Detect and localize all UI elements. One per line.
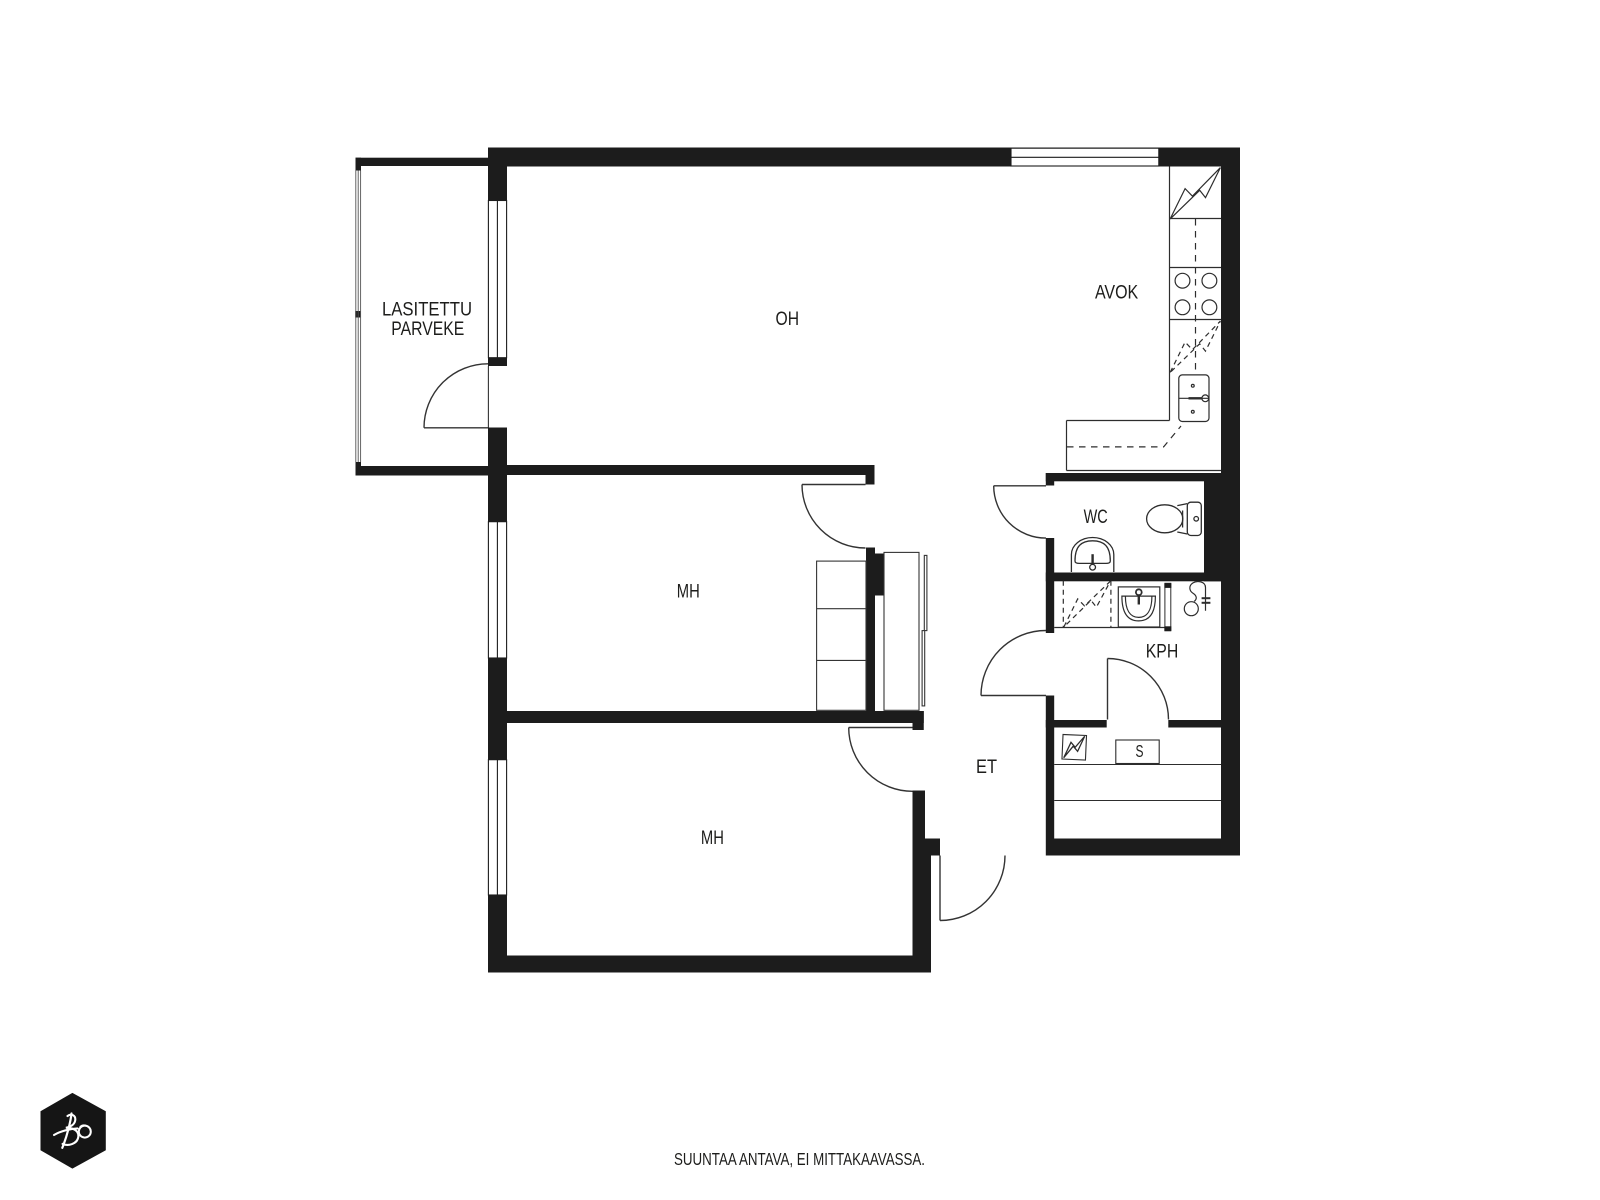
svg-text:MH: MH	[677, 582, 700, 603]
svg-text:WC: WC	[1084, 507, 1108, 528]
svg-text:S: S	[1136, 741, 1144, 761]
svg-text:ET: ET	[976, 757, 997, 778]
svg-text:PARVEKE: PARVEKE	[391, 319, 464, 340]
svg-text:KPH: KPH	[1146, 642, 1179, 663]
svg-text:LASITETTU: LASITETTU	[382, 300, 472, 321]
svg-text:SUUNTAA ANTAVA, EI MITTAKAAVAS: SUUNTAA ANTAVA, EI MITTAKAAVASSA.	[674, 1149, 925, 1169]
svg-text:MH: MH	[701, 828, 724, 849]
svg-text:AVOK: AVOK	[1095, 282, 1139, 303]
svg-text:OH: OH	[776, 309, 800, 330]
